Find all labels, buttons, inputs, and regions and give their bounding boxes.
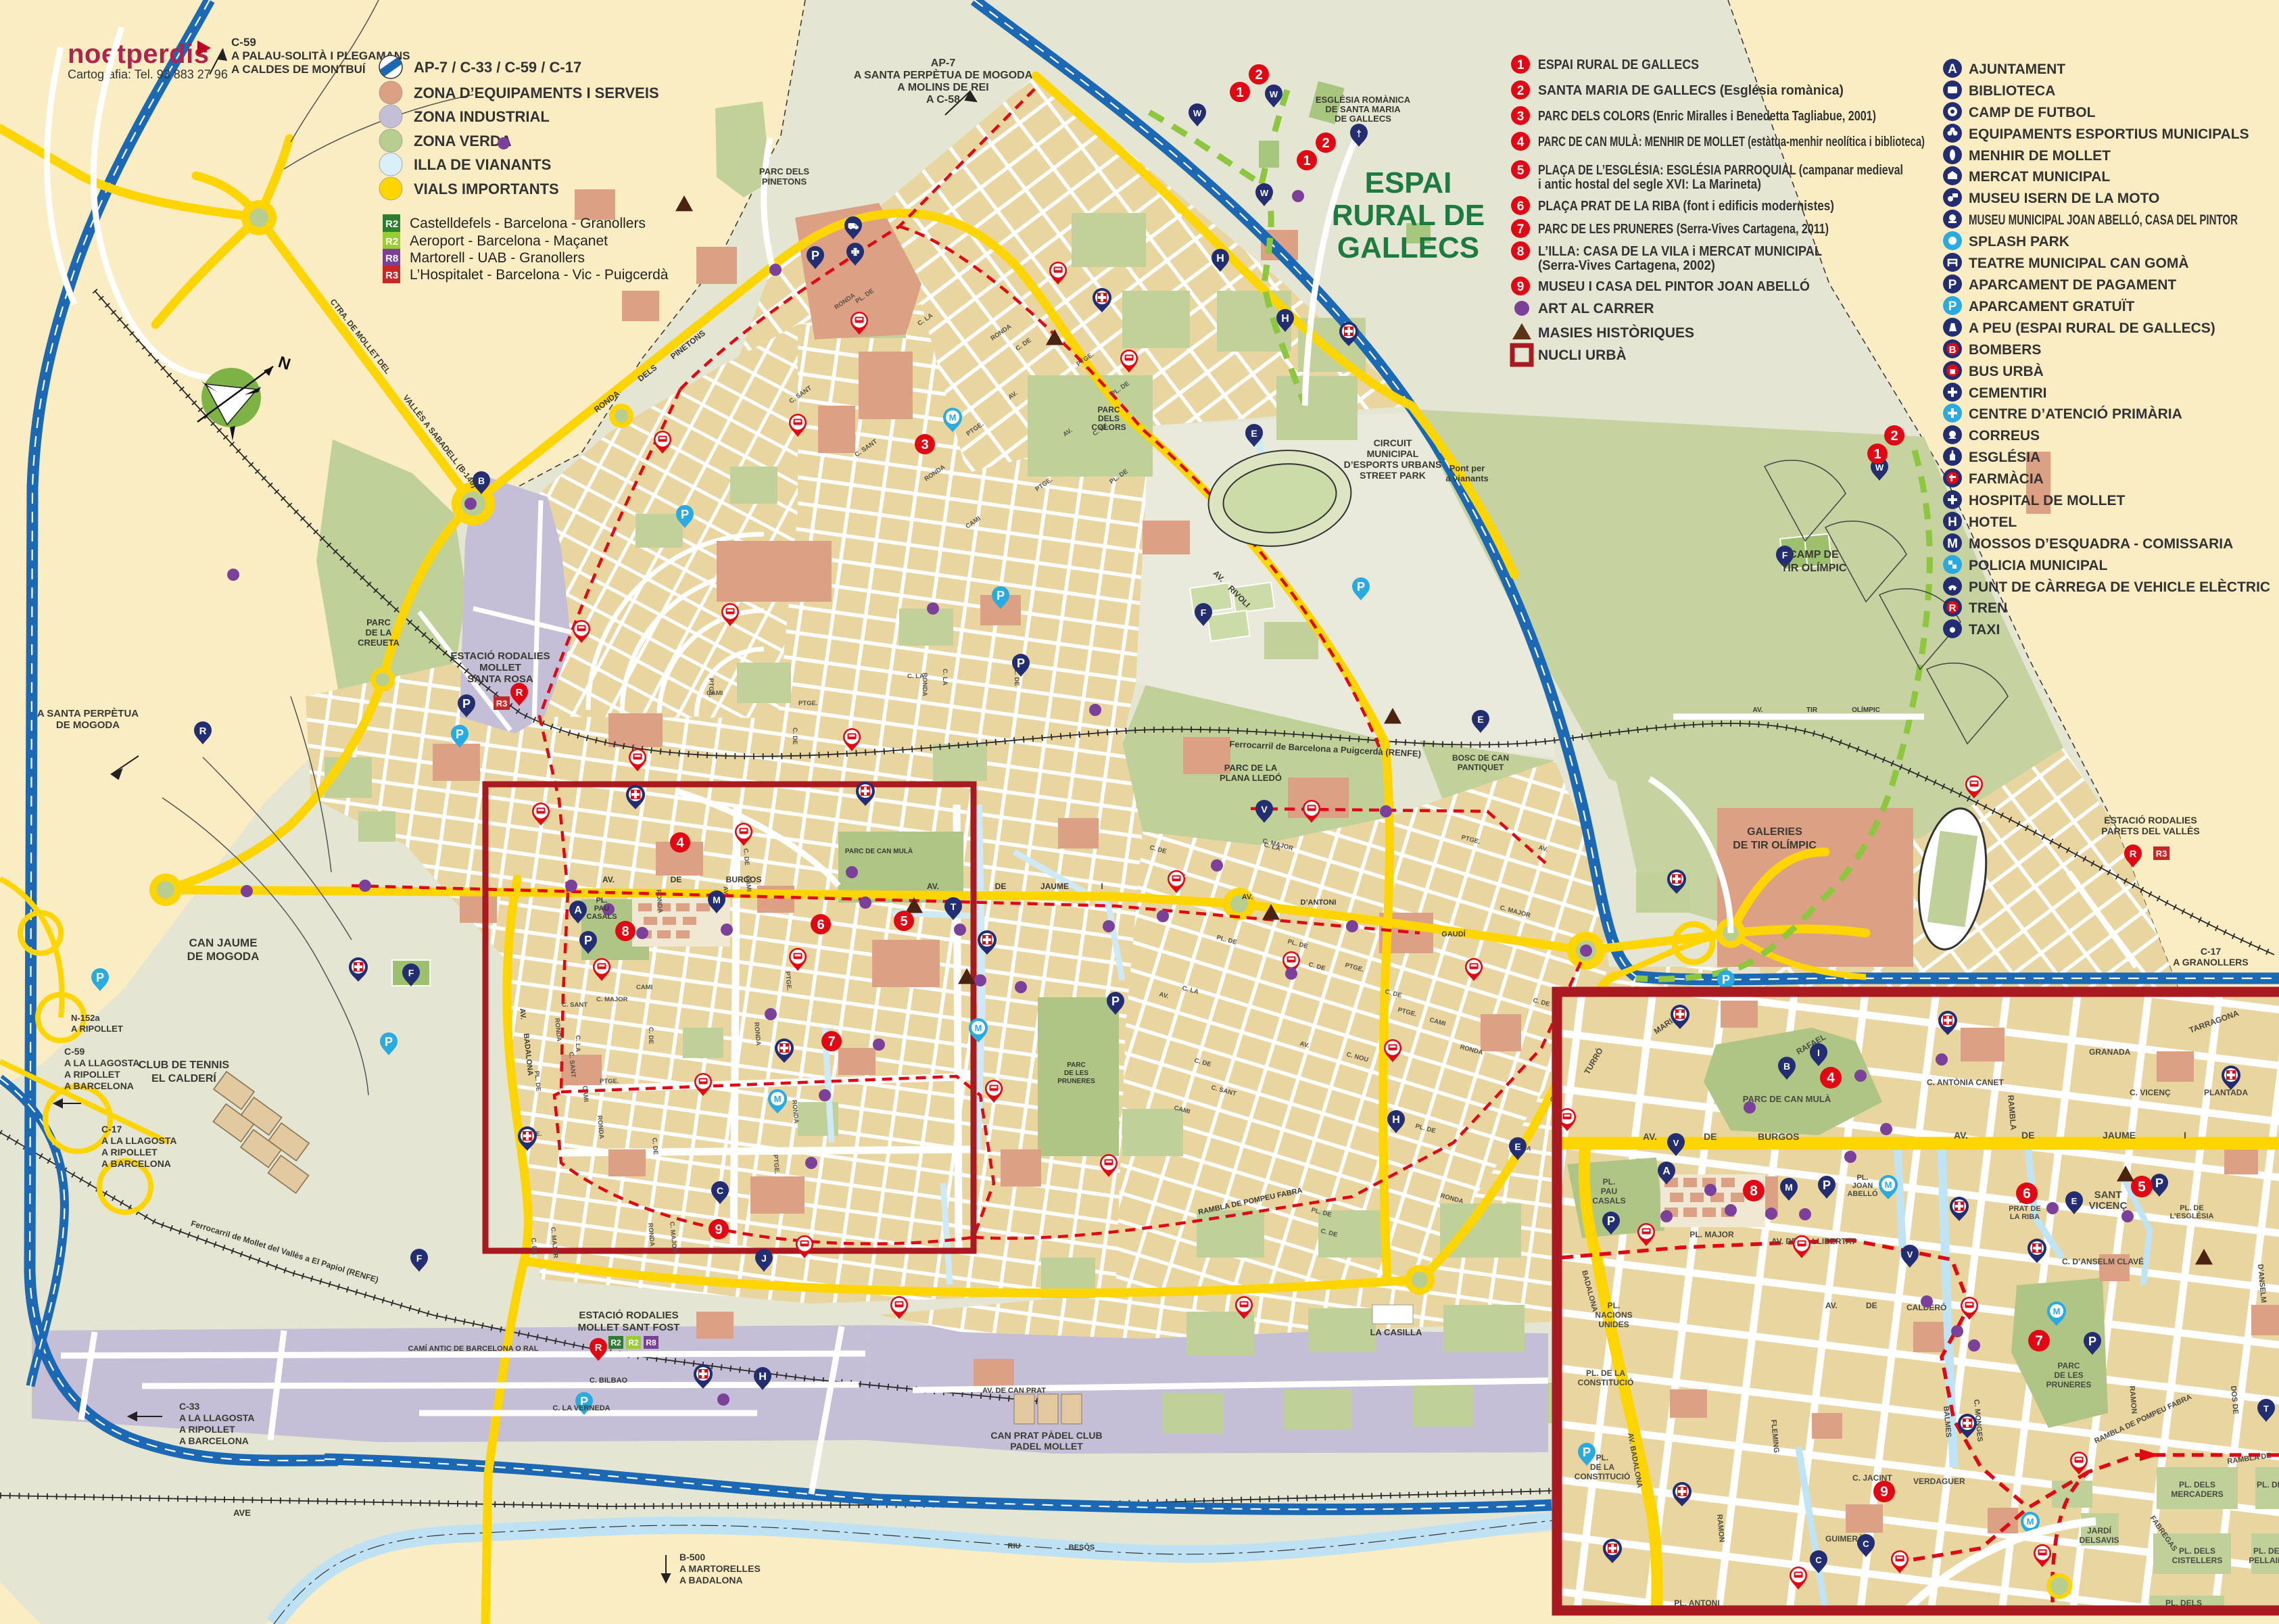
svg-text:A CALDES DE MONTBUÍ: A CALDES DE MONTBUÍ <box>231 63 366 76</box>
svg-text:PARC: PARC <box>2057 1361 2080 1370</box>
svg-text:C. DE: C. DE <box>742 848 750 865</box>
svg-text:H: H <box>1392 1114 1400 1126</box>
svg-text:HOTEL: HOTEL <box>1969 515 2017 530</box>
svg-text:A LA LLAGOSTA: A LA LLAGOSTA <box>101 1135 176 1146</box>
svg-text:I: I <box>1817 1047 1820 1058</box>
svg-text:B: B <box>1949 344 1957 356</box>
svg-text:PL. DELS: PL. DELS <box>2179 1546 2215 1556</box>
svg-text:ZONA D’EQUIPAMENTS I SERVEIS: ZONA D’EQUIPAMENTS I SERVEIS <box>414 85 659 101</box>
svg-text:C. MAJOR: C. MAJOR <box>596 996 628 1003</box>
svg-text:B: B <box>1783 1061 1790 1072</box>
svg-text:8: 8 <box>1750 1183 1758 1199</box>
svg-text:PLANA LLEDÓ: PLANA LLEDÓ <box>1220 773 1282 783</box>
svg-text:PTGE.: PTGE. <box>798 700 818 707</box>
svg-text:1: 1 <box>1517 58 1525 72</box>
svg-text:P: P <box>681 508 689 521</box>
svg-text:UNIDES: UNIDES <box>1598 1320 1629 1329</box>
svg-text:VERDAGUER: VERDAGUER <box>1913 1477 1965 1486</box>
svg-text:SANT: SANT <box>2094 1189 2122 1201</box>
svg-text:R8: R8 <box>385 253 398 264</box>
svg-text:4: 4 <box>1517 135 1525 149</box>
svg-text:R: R <box>199 725 207 737</box>
svg-text:AV. DE LA LLIBERTAT: AV. DE LA LLIBERTAT <box>1771 1237 1856 1246</box>
svg-text:MUNICIPAL: MUNICIPAL <box>1367 448 1419 459</box>
svg-text:C. LA: C. LA <box>941 669 949 686</box>
svg-text:Cartografia: Tel. 93 883 27 96: Cartografia: Tel. 93 883 27 96 <box>68 68 228 81</box>
svg-text:F: F <box>1201 607 1207 618</box>
svg-text:C-59: C-59 <box>64 1046 85 1057</box>
svg-text:PL. MAJOR: PL. MAJOR <box>1689 1230 1734 1239</box>
svg-text:W: W <box>1193 108 1202 118</box>
svg-text:PL. DELS: PL. DELS <box>2179 1480 2215 1489</box>
svg-text:BIBLIOTECA: BIBLIOTECA <box>1969 83 2055 99</box>
svg-text:A RIPOLLET: A RIPOLLET <box>101 1147 158 1157</box>
svg-text:A LA LLAGOSTA: A LA LLAGOSTA <box>179 1412 254 1423</box>
svg-text:DELS: DELS <box>1098 414 1120 423</box>
svg-text:PLANTADA: PLANTADA <box>2204 1088 2248 1097</box>
svg-text:A SANTA PERPÈTUA DE MOGODA: A SANTA PERPÈTUA DE MOGODA <box>854 68 1033 81</box>
svg-text:M: M <box>975 1023 982 1033</box>
svg-text:A PEU (ESPAI RURAL DE GALLECS): A PEU (ESPAI RURAL DE GALLECS) <box>1969 320 2215 336</box>
svg-text:CREUETA: CREUETA <box>358 638 400 648</box>
svg-text:PARC: PARC <box>366 617 391 627</box>
svg-text:SANTA MARIA DE GALLECS (Esglés: SANTA MARIA DE GALLECS (Església romànic… <box>1538 83 1844 98</box>
svg-text:PARC: PARC <box>1097 405 1120 414</box>
svg-text:AV.: AV. <box>1825 1301 1838 1310</box>
svg-text:E: E <box>2071 1196 2078 1206</box>
svg-text:C. ANTÒNIA CANET: C. ANTÒNIA CANET <box>1927 1077 2004 1087</box>
svg-text:DE: DE <box>671 875 682 884</box>
svg-text:BESÒS: BESÒS <box>1069 1543 1095 1552</box>
svg-text:DE: DE <box>2021 1130 2034 1141</box>
svg-text:M: M <box>1947 537 1958 551</box>
svg-text:DE: DE <box>1704 1131 1717 1142</box>
svg-text:EQUIPAMENTS ESPORTIUS MUNICIPA: EQUIPAMENTS ESPORTIUS MUNICIPALS <box>1969 126 2249 142</box>
svg-text:BURGOS: BURGOS <box>726 875 762 884</box>
svg-text:PARC DE CAN MULÀ: MENHIR DE MO: PARC DE CAN MULÀ: MENHIR DE MOLLET (està… <box>1538 134 1925 149</box>
svg-text:PARC DE CAN MULÀ: PARC DE CAN MULÀ <box>845 846 913 855</box>
svg-text:B: B <box>478 475 485 486</box>
svg-text:FARMÀCIA: FARMÀCIA <box>1969 471 2044 487</box>
svg-text:P: P <box>1607 1214 1615 1228</box>
svg-text:CLUB DE TENNIS: CLUB DE TENNIS <box>139 1059 230 1071</box>
svg-text:P: P <box>1357 580 1365 594</box>
svg-text:AV.: AV. <box>1954 1130 1968 1141</box>
svg-text:PARC DE CAN MULÀ: PARC DE CAN MULÀ <box>1743 1094 1831 1104</box>
svg-text:V: V <box>1907 1249 1913 1260</box>
svg-text:VIALS IMPORTANTS: VIALS IMPORTANTS <box>414 181 559 197</box>
svg-text:CEMENTIRI: CEMENTIRI <box>1969 385 2047 401</box>
svg-text:CISTELLERS: CISTELLERS <box>2172 1556 2223 1565</box>
svg-text:JAUME: JAUME <box>1040 882 1069 891</box>
svg-text:BOSC DE CAN: BOSC DE CAN <box>1452 753 1509 763</box>
svg-text:3: 3 <box>1517 110 1525 124</box>
svg-text:CAN JAUME: CAN JAUME <box>189 936 257 949</box>
svg-text:AV.: AV. <box>927 882 939 891</box>
svg-text:PARC DE LES PRUNERES (Serra-Vi: PARC DE LES PRUNERES (Serra-Vives Cartag… <box>1538 222 1829 237</box>
svg-text:C. LA: C. LA <box>574 1035 581 1052</box>
svg-text:AV.: AV. <box>602 875 615 884</box>
svg-text:MERCADERS: MERCADERS <box>2171 1489 2223 1499</box>
svg-text:(Serra-Vives Cartagena, 2002): (Serra-Vives Cartagena, 2002) <box>1538 258 1715 273</box>
svg-text:R: R <box>2130 849 2137 860</box>
svg-text:PAU: PAU <box>1601 1187 1617 1196</box>
svg-text:8: 8 <box>621 924 629 939</box>
svg-text:PUNT DE CÀRREGA DE VEHICLE ELÈ: PUNT DE CÀRREGA DE VEHICLE ELÈCTRIC <box>1969 579 2270 595</box>
svg-text:AV.: AV. <box>1752 707 1762 714</box>
svg-text:C-33: C-33 <box>179 1401 200 1412</box>
svg-text:DE LA: DE LA <box>366 627 393 638</box>
svg-text:R8: R8 <box>646 1338 656 1347</box>
svg-text:JARDÍ: JARDÍ <box>2087 1525 2112 1535</box>
svg-text:N-152a: N-152a <box>71 1013 100 1023</box>
svg-text:D’ANTONI: D’ANTONI <box>1301 899 1337 907</box>
svg-text:✙: ✙ <box>851 247 860 258</box>
svg-text:6: 6 <box>817 917 824 932</box>
svg-text:A BADALONA: A BADALONA <box>679 1575 743 1585</box>
svg-text:M: M <box>713 894 721 905</box>
svg-text:RURAL DE: RURAL DE <box>1332 199 1485 232</box>
svg-text:F: F <box>1782 550 1788 560</box>
svg-text:T: T <box>2263 1404 2269 1414</box>
svg-text:ESTACIÓ RODALIES: ESTACIÓ RODALIES <box>579 1309 678 1321</box>
svg-text:C. BILBAO: C. BILBAO <box>590 1377 628 1385</box>
svg-text:CAMI: CAMI <box>581 1085 590 1102</box>
svg-text:ESPAI: ESPAI <box>1365 166 1452 199</box>
svg-text:DE SANTA MARIA: DE SANTA MARIA <box>1325 104 1401 114</box>
svg-text:P: P <box>1948 300 1957 314</box>
svg-text:M: M <box>949 412 957 423</box>
svg-text:DE MOGODA: DE MOGODA <box>187 950 260 963</box>
svg-text:V: V <box>1261 804 1268 815</box>
svg-text:C. DE: C. DE <box>791 727 798 744</box>
svg-text:6: 6 <box>1517 199 1525 214</box>
svg-text:DE: DE <box>1866 1301 1877 1310</box>
svg-text:C. LA VERNEDA: C. LA VERNEDA <box>552 1404 610 1412</box>
svg-text:A BARCELONA: A BARCELONA <box>179 1435 249 1446</box>
svg-text:DE LES: DE LES <box>2054 1370 2083 1380</box>
svg-text:AP-7 / C-33 / C-59 / C-17: AP-7 / C-33 / C-59 / C-17 <box>414 59 581 76</box>
svg-text:MOLLET SANT FOST: MOLLET SANT FOST <box>578 1322 680 1333</box>
svg-text:PADEL MOLLET: PADEL MOLLET <box>1010 1441 1083 1452</box>
svg-text:PLAÇA DE L’ESGLÉSIA: ESGLÉSIA: PLAÇA DE L’ESGLÉSIA: ESGLÉSIA PARROQUIAL… <box>1538 162 1903 178</box>
svg-text:RONDA: RONDA <box>921 673 928 696</box>
svg-text:H: H <box>1281 313 1289 325</box>
svg-text:F: F <box>408 968 414 978</box>
svg-text:P: P <box>385 1035 393 1049</box>
svg-text:HOSPITAL DE MOLLET: HOSPITAL DE MOLLET <box>1969 493 2126 508</box>
svg-text:CONSTITUCIÓ: CONSTITUCIÓ <box>1575 1471 1631 1481</box>
svg-text:D’ESPORTS URBANS: D’ESPORTS URBANS <box>1344 459 1442 470</box>
svg-text:ILLA DE VIANANTS: ILLA DE VIANANTS <box>414 156 551 173</box>
svg-text:AVE: AVE <box>233 1508 251 1518</box>
svg-text:M: M <box>2053 1306 2061 1316</box>
svg-text:Pont per: Pont per <box>1449 463 1485 473</box>
svg-text:CIRCUIT: CIRCUIT <box>1374 437 1412 448</box>
svg-text:ART AL CARRER: ART AL CARRER <box>1538 301 1654 316</box>
svg-text:R: R <box>516 687 523 698</box>
svg-text:I: I <box>1101 882 1103 891</box>
svg-text:DE TIR OLÍMPIC: DE TIR OLÍMPIC <box>1733 838 1817 851</box>
svg-text:P: P <box>2155 1176 2163 1190</box>
svg-text:PAU: PAU <box>594 905 609 913</box>
svg-text:P: P <box>1823 1178 1831 1192</box>
svg-text:GAUDÍ: GAUDÍ <box>1441 930 1466 938</box>
svg-text:PL.: PL. <box>1596 1453 1609 1462</box>
svg-text:JOAN: JOAN <box>1852 1182 1873 1190</box>
svg-text:NACIONS: NACIONS <box>1595 1310 1632 1320</box>
svg-text:A: A <box>1662 1166 1671 1177</box>
svg-text:C: C <box>1863 1539 1869 1549</box>
svg-text:E: E <box>1514 1141 1520 1152</box>
svg-text:TEATRE MUNICIPAL CAN GOMÀ: TEATRE MUNICIPAL CAN GOMÀ <box>1969 256 2189 271</box>
svg-text:7: 7 <box>2035 1333 2043 1349</box>
svg-text:GRANADA: GRANADA <box>2089 1047 2131 1057</box>
svg-text:B-500: B-500 <box>679 1552 705 1562</box>
svg-text:BUS URBÀ: BUS URBÀ <box>1969 364 2044 379</box>
svg-text:A BARCELONA: A BARCELONA <box>101 1158 171 1169</box>
svg-text:2: 2 <box>1255 68 1262 82</box>
svg-text:M: M <box>1885 1180 1892 1190</box>
svg-text:T: T <box>951 901 957 912</box>
svg-text:MUSEU MUNICIPAL JOAN ABELLÓ, C: MUSEU MUNICIPAL JOAN ABELLÓ, CASA DEL PI… <box>1969 212 2238 228</box>
svg-text:i antic hostal del segle XVI:: i antic hostal del segle XVI: La Marinet… <box>1538 177 1761 192</box>
svg-text:M: M <box>2027 1516 2034 1527</box>
svg-text:MUSEU I CASA DEL PINTOR JOAN A: MUSEU I CASA DEL PINTOR JOAN ABELLÓ <box>1538 278 1810 294</box>
svg-text:BURGOS: BURGOS <box>1758 1131 1799 1142</box>
svg-text:LA CASILLA: LA CASILLA <box>1370 1327 1422 1337</box>
svg-text:DE MOGODA: DE MOGODA <box>56 719 120 731</box>
svg-text:TIR: TIR <box>1806 707 1818 714</box>
svg-text:DE LES: DE LES <box>1064 1070 1088 1077</box>
svg-text:L’ILLA: CASA DE LA VILA i MERC: L’ILLA: CASA DE LA VILA i MERCAT MUNICIP… <box>1538 244 1822 259</box>
svg-text:C-17: C-17 <box>101 1124 122 1135</box>
svg-text:PELLAIRES: PELLAIRES <box>2249 1556 2279 1565</box>
svg-text:2: 2 <box>1322 136 1329 151</box>
svg-text:A RIPOLLET: A RIPOLLET <box>64 1069 120 1080</box>
svg-text:CONSTITUCIÓ: CONSTITUCIÓ <box>1578 1377 1634 1387</box>
svg-text:CAMI: CAMI <box>636 984 652 991</box>
svg-text:TIR OLÍMPIC: TIR OLÍMPIC <box>1781 561 1847 574</box>
svg-text:ABELLÓ: ABELLÓ <box>1847 1189 1878 1198</box>
svg-text:DE: DE <box>995 882 1007 891</box>
svg-text:C: C <box>717 1185 723 1196</box>
svg-text:PL.: PL. <box>1608 1301 1621 1310</box>
svg-text:PL. DELS: PL. DELS <box>2253 1546 2279 1556</box>
svg-text:TAXI: TAXI <box>1969 622 2000 638</box>
svg-text:BOMBERS: BOMBERS <box>1969 342 2041 358</box>
svg-text:L’Hospitalet - Barcelona - Vic: L’Hospitalet - Barcelona - Vic - Puigcer… <box>410 267 669 283</box>
svg-text:C-17: C-17 <box>2201 946 2222 957</box>
svg-text:CORREUS: CORREUS <box>1969 428 2040 444</box>
svg-text:AV.: AV. <box>518 1008 527 1020</box>
svg-text:A BARCELONA: A BARCELONA <box>64 1080 134 1091</box>
svg-text:R2: R2 <box>628 1338 639 1347</box>
svg-text:A RIPOLLET: A RIPOLLET <box>71 1024 123 1034</box>
svg-text:AV.: AV. <box>1643 1131 1657 1142</box>
svg-text:R3: R3 <box>2156 849 2167 859</box>
svg-text:P: P <box>96 971 104 984</box>
svg-text:2: 2 <box>1517 84 1525 98</box>
svg-text:W: W <box>1875 462 1884 473</box>
svg-text:P: P <box>1583 1446 1591 1459</box>
svg-text:PINETONS: PINETONS <box>762 176 807 187</box>
svg-text:9: 9 <box>1517 280 1525 294</box>
svg-text:ESGLÉSIA: ESGLÉSIA <box>1969 450 2040 465</box>
svg-text:A LA LLAGOSTA: A LA LLAGOSTA <box>64 1057 139 1068</box>
svg-text:PL.: PL. <box>1856 1174 1868 1182</box>
svg-text:J: J <box>761 1253 767 1264</box>
svg-text:†: † <box>1356 128 1362 139</box>
svg-text:SPLASH PARK: SPLASH PARK <box>1969 234 2069 249</box>
svg-text:GALERIES: GALERIES <box>1747 826 1802 838</box>
svg-text:R3: R3 <box>496 698 508 709</box>
svg-text:PARC DELS COLORS (Enric Mirall: PARC DELS COLORS (Enric Miralles i Bened… <box>1538 109 1876 124</box>
svg-text:P: P <box>1111 995 1120 1008</box>
svg-text:V: V <box>1673 1138 1679 1148</box>
svg-text:1: 1 <box>1303 153 1310 168</box>
svg-text:PARC DE LA: PARC DE LA <box>1224 763 1278 773</box>
svg-text:GALLECS: GALLECS <box>1337 231 1479 264</box>
svg-text:P: P <box>1948 278 1957 292</box>
svg-text:R2: R2 <box>610 1338 621 1347</box>
svg-text:5: 5 <box>1517 164 1525 178</box>
svg-text:P: P <box>462 697 471 711</box>
svg-text:ESTACIÓ RODALIES: ESTACIÓ RODALIES <box>450 650 550 662</box>
svg-text:A SANTA PERPÈTUA: A SANTA PERPÈTUA <box>37 708 139 719</box>
svg-text:P: P <box>584 934 592 947</box>
svg-text:DE GALLECS: DE GALLECS <box>1335 114 1391 124</box>
svg-text:POLICIA MUNICIPAL: POLICIA MUNICIPAL <box>1969 558 2107 573</box>
svg-text:EL CALDERÍ: EL CALDERÍ <box>151 1072 216 1084</box>
svg-text:■: ■ <box>1949 366 1955 377</box>
svg-text:2: 2 <box>1890 429 1898 444</box>
svg-text:PL.: PL. <box>596 897 607 905</box>
svg-text:P: P <box>997 589 1005 602</box>
svg-text:P: P <box>1017 656 1025 670</box>
svg-text:M: M <box>1785 1182 1793 1193</box>
svg-text:PTGE.: PTGE. <box>600 1078 619 1085</box>
svg-text:PRUNERES: PRUNERES <box>1057 1078 1095 1085</box>
svg-text:1: 1 <box>1873 447 1881 462</box>
svg-text:4: 4 <box>676 836 684 851</box>
svg-text:PARETS DEL VALLÈS: PARETS DEL VALLÈS <box>2101 826 2199 836</box>
svg-text:Castelldefels - Barcelona - Gr: Castelldefels - Barcelona - Granollers <box>410 216 646 231</box>
svg-text:C: C <box>1815 1555 1822 1565</box>
svg-text:CAN PRAT PÀDEL CLUB: CAN PRAT PÀDEL CLUB <box>990 1430 1102 1441</box>
svg-text:COLORS: COLORS <box>1091 423 1126 432</box>
svg-text:a vianants: a vianants <box>1445 473 1489 483</box>
svg-text:PL.: PL. <box>1603 1177 1616 1187</box>
svg-text:E: E <box>1477 714 1483 725</box>
svg-text:9: 9 <box>1880 1484 1888 1500</box>
svg-text:AP-7: AP-7 <box>931 57 956 69</box>
svg-text:W: W <box>1270 89 1278 99</box>
svg-text:7: 7 <box>827 1034 835 1049</box>
svg-text:ESPAI RURAL DE GALLECS: ESPAI RURAL DE GALLECS <box>1538 57 1699 72</box>
svg-text:RIU: RIU <box>1008 1542 1021 1550</box>
svg-text:PRUNERES: PRUNERES <box>2046 1380 2092 1389</box>
svg-text:Aeroport - Barcelona - Maçanet: Aeroport - Barcelona - Maçanet <box>410 233 608 249</box>
svg-text:P: P <box>811 249 819 262</box>
svg-text:C. DE: C. DE <box>650 1137 659 1155</box>
svg-text:A C-58: A C-58 <box>926 94 960 105</box>
svg-text:STREET PARK: STREET PARK <box>1360 470 1426 481</box>
svg-text:JAUME: JAUME <box>2103 1130 2136 1141</box>
svg-text:A: A <box>1948 62 1957 76</box>
svg-text:H: H <box>759 1371 767 1383</box>
svg-text:C. VICENÇ: C. VICENÇ <box>2130 1088 2171 1097</box>
svg-text:OLÍMPIC: OLÍMPIC <box>1852 705 1880 714</box>
svg-text:5: 5 <box>900 914 907 929</box>
svg-text:H: H <box>1216 253 1224 264</box>
svg-text:F: F <box>416 1253 423 1264</box>
svg-text:CAMI: CAMI <box>706 690 723 697</box>
svg-text:4: 4 <box>1827 1070 1835 1086</box>
svg-text:PARC DELS: PARC DELS <box>759 166 809 176</box>
svg-text:ZONA INDUSTRIAL: ZONA INDUSTRIAL <box>414 108 550 125</box>
svg-text:MUSEU ISERN DE LA MOTO: MUSEU ISERN DE LA MOTO <box>1969 191 2159 206</box>
svg-text:CAMP DE FUTBOL: CAMP DE FUTBOL <box>1969 105 2096 120</box>
svg-text:1: 1 <box>1236 85 1243 100</box>
svg-text:8: 8 <box>1517 245 1525 259</box>
svg-text:ZONA VERDA: ZONA VERDA <box>414 133 512 149</box>
svg-text:MOSSOS D’ESQUADRA - COMISSARIA: MOSSOS D’ESQUADRA - COMISSARIA <box>1969 536 2233 552</box>
svg-text:5: 5 <box>2138 1179 2146 1195</box>
svg-text:APARCAMENT DE PAGAMENT: APARCAMENT DE PAGAMENT <box>1969 277 2176 293</box>
svg-text:Martorell - UAB - Granollers: Martorell - UAB - Granollers <box>410 250 585 266</box>
svg-text:R2: R2 <box>385 218 398 230</box>
svg-text:PANTIQUET: PANTIQUET <box>1458 763 1504 772</box>
svg-text:M: M <box>774 1094 782 1104</box>
svg-text:C-59: C-59 <box>231 36 256 49</box>
svg-text:L’ESGLÉSIA: L’ESGLÉSIA <box>2170 1212 2214 1220</box>
svg-text:ESTACIÓ RODALIES: ESTACIÓ RODALIES <box>2104 814 2197 826</box>
svg-text:PLAÇA PRAT DE LA RIBA (font i: PLAÇA PRAT DE LA RIBA (font i edificis m… <box>1538 199 1834 214</box>
svg-text:C. SANT: C. SANT <box>562 1001 587 1009</box>
svg-text:DE LA: DE LA <box>1590 1462 1614 1472</box>
svg-text:P: P <box>456 727 464 741</box>
svg-text:PRAT DE: PRAT DE <box>2009 1205 2040 1213</box>
svg-text:DELSAVIS: DELSAVIS <box>2079 1535 2119 1545</box>
svg-text:MERCAT MUNICIPAL: MERCAT MUNICIPAL <box>1969 169 2110 185</box>
svg-text:C. D’ANSELM CLAVÉ: C. D’ANSELM CLAVÉ <box>2062 1256 2144 1266</box>
svg-text:NUCLI URBÀ: NUCLI URBÀ <box>1538 348 1627 363</box>
svg-text:VICENÇ: VICENÇ <box>2089 1200 2128 1212</box>
svg-text:A MARTORELLES: A MARTORELLES <box>679 1563 761 1574</box>
svg-text:ESGLÉSIA ROMÀNICA: ESGLÉSIA ROMÀNICA <box>1316 95 1411 105</box>
svg-text:R: R <box>1949 602 1957 614</box>
svg-text:AV. DE CAN PRAT: AV. DE CAN PRAT <box>982 1387 1046 1395</box>
svg-text:A MOLINS DE REI: A MOLINS DE REI <box>897 82 988 93</box>
svg-text:CASALS: CASALS <box>586 913 617 921</box>
svg-text:P: P <box>2088 1335 2096 1348</box>
svg-text:3: 3 <box>921 437 928 452</box>
svg-text:7: 7 <box>1517 222 1525 237</box>
svg-text:PARC: PARC <box>1067 1061 1086 1069</box>
svg-text:E: E <box>1251 428 1257 439</box>
svg-text:APARCAMENT GRATUÏT: APARCAMENT GRATUÏT <box>1969 299 2135 314</box>
svg-text:CENTRE D’ATENCIÓ PRIMÀRIA: CENTRE D’ATENCIÓ PRIMÀRIA <box>1969 406 2182 422</box>
svg-text:A GRANOLLERS: A GRANOLLERS <box>2173 957 2248 968</box>
svg-text:SANTA ROSA: SANTA ROSA <box>467 673 533 685</box>
svg-text:MENHIR DE MOLLET: MENHIR DE MOLLET <box>1969 148 2111 164</box>
svg-text:R2: R2 <box>385 236 398 247</box>
svg-text:C. DE: C. DE <box>529 1237 538 1255</box>
svg-text:TREN: TREN <box>1969 600 2007 616</box>
svg-text:AV.: AV. <box>1242 893 1253 901</box>
svg-text:●: ● <box>1948 623 1956 637</box>
